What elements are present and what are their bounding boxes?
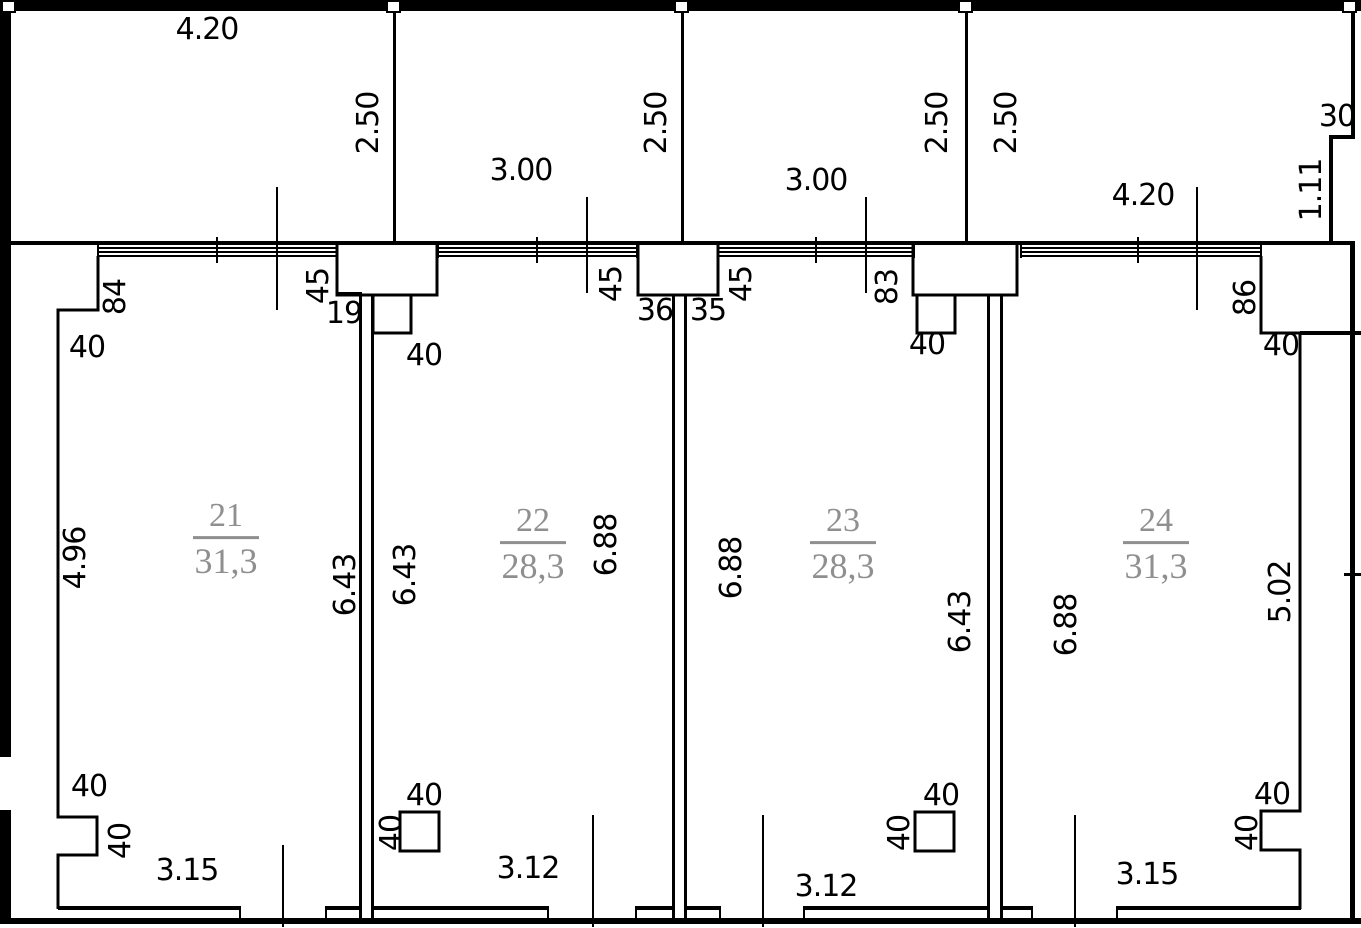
window-jamb (97, 241, 99, 258)
dimension-label: 30 (1319, 102, 1355, 132)
dimension-label: 2.50 (642, 92, 672, 155)
room-bottom-wall (58, 906, 240, 910)
room-bottom-wall (684, 906, 720, 910)
room-divider-wall (987, 295, 990, 921)
dimension-label: 2.50 (923, 92, 953, 155)
dimension-label: 3.12 (497, 854, 560, 884)
room-divider-wall (684, 295, 687, 921)
opening-jamb (325, 906, 327, 921)
room-bottom-wall (804, 906, 988, 910)
dim-tick (865, 197, 867, 293)
dimension-label: 4.20 (176, 15, 239, 45)
dim-tick (282, 845, 284, 927)
dimension-label: 6.88 (1052, 594, 1082, 657)
dimension-label: 1.11 (1297, 159, 1327, 222)
balcony-divider (681, 11, 684, 243)
room-label: 2328,3 (810, 502, 876, 588)
dim-tick (592, 815, 594, 927)
room-area: 28,3 (500, 547, 566, 588)
window-center-tick (1137, 237, 1139, 263)
dimension-label: 6.88 (592, 514, 622, 577)
dimension-label: 40 (923, 781, 959, 811)
dimension-label: 40 (406, 781, 442, 811)
walls-layer (0, 0, 1361, 927)
left-wall-lower (0, 810, 11, 924)
dimension-label: 3.15 (156, 856, 219, 886)
dimension-label: 3.00 (785, 166, 848, 196)
dimension-label: 40 (71, 772, 107, 802)
wall-pier (913, 243, 1017, 295)
dimension-label: 40 (1233, 815, 1263, 851)
axis-marker (1343, 1, 1356, 12)
balcony-divider (393, 11, 396, 243)
window (1020, 255, 1261, 257)
opening-jamb (239, 906, 241, 921)
dimension-label: 3.15 (1116, 860, 1179, 890)
room-number: 23 (810, 502, 876, 544)
dim-tick (276, 187, 278, 310)
window-center-tick (815, 237, 817, 263)
window-jamb (1020, 241, 1022, 258)
room-number: 21 (193, 497, 259, 539)
dimension-label: 40 (106, 823, 136, 859)
dimension-label: 2.50 (992, 92, 1022, 155)
wall-pier (337, 243, 437, 295)
window-center-tick (536, 237, 538, 263)
axis-marker (675, 1, 688, 12)
dimension-label: 84 (101, 279, 131, 315)
dimension-label: 40 (69, 333, 105, 363)
dimension-label: 83 (873, 269, 903, 305)
dim-tick (586, 197, 588, 293)
room-divider-wall (1000, 295, 1003, 921)
right-wall-mid (1329, 135, 1333, 245)
room-number: 24 (1123, 502, 1189, 544)
dimension-label: 2.50 (354, 92, 384, 155)
dim-tick (1074, 815, 1076, 927)
opening-jamb (547, 906, 549, 921)
bottom-wall (0, 918, 1361, 924)
dimension-label: 40 (1254, 780, 1290, 810)
dimension-label: 6.43 (331, 554, 361, 617)
dimension-label: 3.12 (795, 872, 858, 902)
window-center-tick (216, 237, 218, 263)
dimension-label: 6.43 (391, 544, 421, 607)
balcony-divider (965, 11, 968, 243)
dimension-label: 40 (377, 815, 407, 851)
dimension-label: 45 (727, 266, 757, 302)
opening-jamb (719, 906, 721, 921)
dimension-label: 45 (597, 266, 627, 302)
room-bottom-wall (1000, 906, 1032, 910)
dimension-label: 40 (1263, 331, 1299, 361)
dimension-label: 40 (406, 341, 442, 371)
dimension-label: 3.00 (490, 156, 553, 186)
dimension-label: 36 (637, 296, 673, 326)
dimension-label: 19 (326, 299, 362, 329)
room-area: 31,3 (193, 542, 259, 583)
dimension-label: 40 (909, 330, 945, 360)
room-bottom-wall (1117, 906, 1301, 910)
room-bottom-wall (636, 906, 675, 910)
room-area: 28,3 (810, 547, 876, 588)
dimension-label: 35 (690, 296, 726, 326)
axis-marker (387, 1, 400, 12)
left-wall-upper (0, 11, 11, 757)
room-divider-wall (672, 295, 675, 921)
dimension-label: 4.96 (61, 527, 91, 590)
window (1020, 251, 1261, 253)
room-bottom-wall (373, 906, 548, 910)
opening-jamb (1116, 906, 1118, 921)
dimension-label: 5.02 (1266, 561, 1296, 624)
dim-tick (1196, 187, 1198, 310)
room-area: 31,3 (1123, 547, 1189, 588)
right-wall-tick (1344, 573, 1361, 576)
dimension-label: 86 (1231, 280, 1261, 316)
wall-pier (638, 243, 718, 295)
right-wall-main (1350, 243, 1355, 924)
dimension-label: 6.88 (717, 537, 747, 600)
axis-marker (2, 1, 15, 12)
room-label: 2228,3 (500, 502, 566, 588)
room-number: 22 (500, 502, 566, 544)
axis-marker (959, 1, 972, 12)
corner-notch (373, 295, 411, 333)
dimension-label: 6.43 (946, 591, 976, 654)
dimension-label: 40 (885, 815, 915, 851)
dim-tick (762, 815, 764, 927)
dimension-label: 4.20 (1112, 181, 1175, 211)
room-label: 2431,3 (1123, 502, 1189, 588)
right-wall-connector (1300, 331, 1361, 335)
room-label: 2131,3 (193, 497, 259, 583)
opening-jamb (1031, 906, 1033, 921)
window (1020, 247, 1261, 249)
room-bottom-wall (326, 906, 362, 910)
opening-jamb (803, 906, 805, 921)
floor-plan-drawing (0, 0, 1361, 928)
column (915, 812, 954, 851)
floor-plan: 4.203.003.004.20302.502.502.502.501.1184… (0, 0, 1361, 928)
opening-jamb (635, 906, 637, 921)
window-jamb (1260, 241, 1262, 258)
